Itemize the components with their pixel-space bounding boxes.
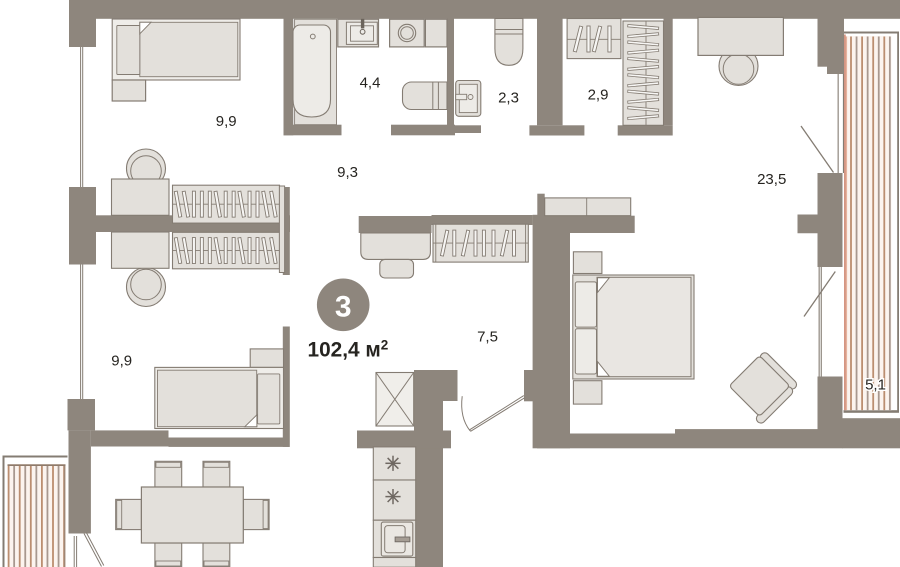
svg-text:3: 3 [335,291,352,324]
svg-text:102,4 м2: 102,4 м2 [308,337,389,361]
svg-text:9,3: 9,3 [337,164,358,181]
svg-text:23,5: 23,5 [757,171,786,188]
svg-text:9,9: 9,9 [216,113,237,130]
svg-text:4,4: 4,4 [360,75,381,92]
svg-text:7,5: 7,5 [477,329,498,346]
svg-text:2,9: 2,9 [588,87,609,104]
svg-text:5,1: 5,1 [865,377,886,394]
svg-text:2,3: 2,3 [498,90,519,107]
svg-text:9,9: 9,9 [111,353,132,370]
